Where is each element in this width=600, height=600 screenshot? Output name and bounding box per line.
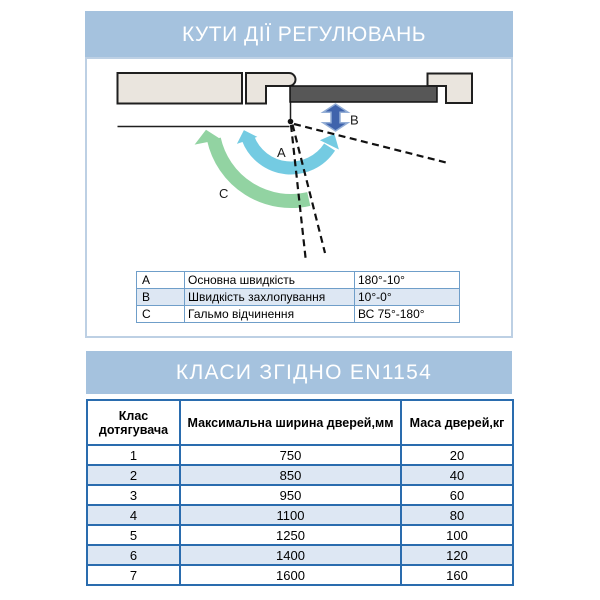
svg-text:C: C xyxy=(219,186,228,201)
svg-text:А: А xyxy=(277,145,286,160)
svg-text:B: B xyxy=(350,113,359,128)
